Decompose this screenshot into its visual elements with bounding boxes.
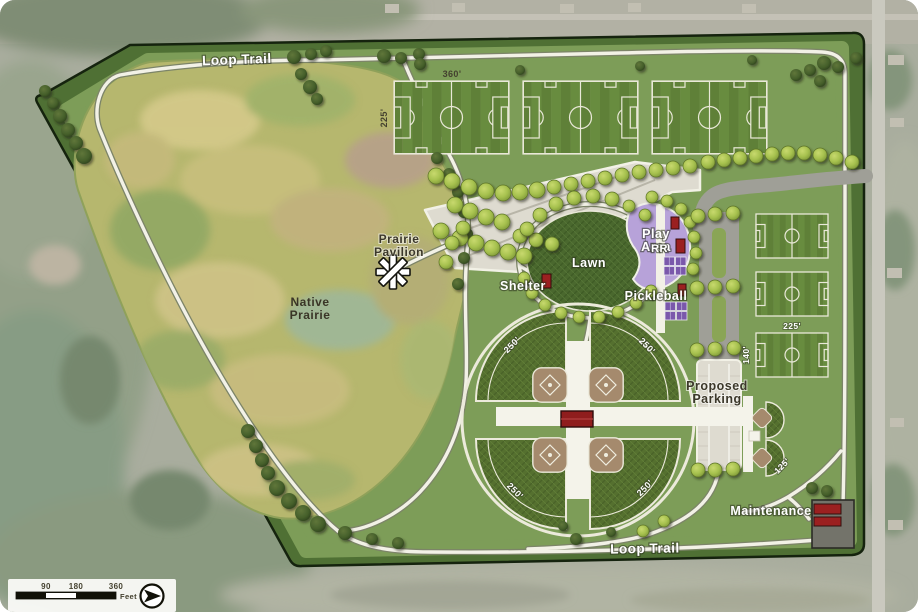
tree-icon [727, 341, 741, 355]
evergreen-tree-icon [295, 68, 307, 80]
tree-icon [708, 342, 722, 356]
tree-icon [433, 223, 449, 239]
tree-icon [813, 148, 827, 162]
evergreen-tree-icon [452, 278, 464, 290]
tree-icon [516, 248, 532, 264]
tree-icon [726, 206, 740, 220]
tree-icon [726, 462, 740, 476]
tree-icon [708, 280, 722, 294]
tree-icon [468, 235, 484, 251]
evergreen-tree-icon [606, 527, 616, 537]
tree-icon [708, 463, 722, 477]
label-proposed-parking: Proposed [686, 379, 748, 393]
evergreen-tree-icon [570, 533, 582, 545]
evergreen-tree-icon [320, 45, 332, 57]
evergreen-tree-icon [558, 521, 568, 531]
tree-icon [632, 165, 646, 179]
tree-icon [690, 343, 704, 357]
tree-icon [691, 209, 705, 223]
tree-icon [845, 155, 859, 169]
tree-icon [666, 161, 680, 175]
tree-icon [708, 207, 722, 221]
dim-soccer-length: 360' [443, 69, 462, 79]
label-loop-trail-top: Loop Trail [202, 51, 272, 68]
evergreen-tree-icon [821, 485, 833, 497]
tree-icon [456, 221, 470, 235]
tree-icon [495, 185, 511, 201]
tree-icon [462, 203, 478, 219]
tree-icon [567, 191, 581, 205]
tree-icon [829, 151, 843, 165]
prairie-pavilion-asterisk-icon [376, 255, 410, 289]
dim-small-soccer-width: 140' [741, 346, 751, 364]
tree-icon [520, 222, 534, 236]
evergreen-tree-icon [287, 50, 301, 64]
tree-icon [461, 179, 477, 195]
tree-icon [688, 231, 700, 243]
scale-unit: Feet [120, 592, 137, 601]
tree-icon [512, 184, 528, 200]
evergreen-tree-icon [261, 466, 275, 480]
evergreen-tree-icon [832, 61, 844, 73]
evergreen-tree-icon [53, 109, 67, 123]
tree-icon [478, 209, 494, 225]
label-native-prairie-2: Prairie [290, 308, 331, 322]
tree-icon [484, 240, 500, 256]
evergreen-tree-icon [747, 55, 757, 65]
evergreen-tree-icon [790, 69, 802, 81]
tree-icon [661, 195, 673, 207]
tree-icon [494, 214, 510, 230]
tree-icon [598, 171, 612, 185]
evergreen-tree-icon [338, 526, 352, 540]
tree-icon [444, 173, 460, 189]
tree-icon [586, 189, 600, 203]
tree-icon [428, 168, 444, 184]
tree-icon [593, 311, 605, 323]
evergreen-tree-icon [249, 439, 263, 453]
label-rr: RR [651, 243, 668, 255]
label-prairie-pavilion-2: Pavilion [374, 245, 424, 259]
tree-icon [717, 153, 731, 167]
north-arrow-icon [141, 585, 164, 608]
evergreen-tree-icon [806, 482, 818, 494]
tree-icon [445, 236, 459, 250]
evergreen-tree-icon [850, 52, 862, 64]
site-plan-svg: Loop Trail Loop Trail Native Prairie Pra… [0, 0, 918, 612]
tree-icon [690, 281, 704, 295]
evergreen-tree-icon [366, 533, 378, 545]
scale-tick-180: 180 [69, 582, 84, 591]
evergreen-tree-icon [414, 58, 426, 70]
tree-icon [726, 279, 740, 293]
label-native-prairie: Native [290, 295, 329, 309]
tree-icon [533, 208, 547, 222]
evergreen-tree-icon [814, 75, 826, 87]
tree-icon [797, 146, 811, 160]
evergreen-tree-icon [395, 52, 407, 64]
evergreen-tree-icon [804, 64, 816, 76]
tree-icon [539, 299, 551, 311]
label-loop-trail-bottom: Loop Trail [610, 540, 680, 556]
tree-icon [500, 244, 516, 260]
tree-icon [639, 209, 651, 221]
evergreen-tree-icon [303, 80, 317, 94]
evergreen-tree-icon [241, 424, 255, 438]
tree-icon [749, 149, 763, 163]
tree-icon [765, 147, 779, 161]
dim-small-soccer-length: 225' [783, 321, 801, 331]
tree-icon [691, 463, 705, 477]
tree-icon [701, 155, 715, 169]
evergreen-tree-icon [392, 537, 404, 549]
tree-icon [564, 177, 578, 191]
tree-icon [555, 307, 567, 319]
label-play-area: Play [642, 227, 670, 241]
soccer-fields-small [756, 214, 828, 377]
tree-icon [658, 515, 670, 527]
tree-icon [605, 192, 619, 206]
evergreen-tree-icon [305, 48, 317, 60]
maintenance-building [812, 500, 854, 548]
scale-tick-90: 90 [41, 582, 51, 591]
evergreen-tree-icon [269, 480, 285, 496]
tree-icon [637, 525, 649, 537]
tree-icon [675, 203, 687, 215]
tree-icon [549, 197, 563, 211]
label-maintenance: Maintenance [730, 504, 811, 518]
evergreen-tree-icon [431, 152, 443, 164]
scale-tick-360: 360 [109, 582, 124, 591]
evergreen-tree-icon [47, 97, 59, 109]
evergreen-tree-icon [61, 123, 75, 137]
dim-soccer-width: 225' [379, 109, 389, 128]
evergreen-tree-icon [635, 61, 645, 71]
evergreen-tree-icon [377, 49, 391, 63]
tree-icon [447, 197, 463, 213]
tree-icon [690, 247, 702, 259]
tree-icon [573, 311, 585, 323]
label-prairie-pavilion: Prairie [379, 232, 420, 246]
tree-icon [612, 306, 624, 318]
label-pickleball: Pickleball [625, 289, 688, 303]
park-master-plan-map: Loop Trail Loop Trail Native Prairie Pra… [0, 0, 918, 612]
evergreen-tree-icon [281, 493, 297, 509]
tree-icon [478, 183, 494, 199]
tree-icon [646, 191, 658, 203]
evergreen-tree-icon [515, 65, 525, 75]
tree-icon [615, 168, 629, 182]
evergreen-tree-icon [310, 516, 326, 532]
tree-icon [687, 263, 699, 275]
evergreen-tree-icon [458, 252, 470, 264]
tree-icon [581, 174, 595, 188]
evergreen-tree-icon [69, 136, 83, 150]
evergreen-tree-icon [817, 56, 831, 70]
tree-icon [683, 159, 697, 173]
label-shelter: Shelter [500, 279, 546, 293]
tree-icon [547, 180, 561, 194]
evergreen-tree-icon [295, 505, 311, 521]
soccer-fields-large [394, 81, 767, 154]
tree-icon [733, 151, 747, 165]
label-proposed-parking-2: Parking [692, 392, 741, 406]
tree-icon [781, 146, 795, 160]
evergreen-tree-icon [76, 148, 92, 164]
label-lawn: Lawn [572, 256, 606, 270]
evergreen-tree-icon [39, 85, 51, 97]
tree-icon [623, 200, 635, 212]
tree-icon [545, 237, 559, 251]
evergreen-tree-icon [255, 453, 269, 467]
tree-icon [649, 163, 663, 177]
tree-icon [439, 255, 453, 269]
tree-icon [529, 182, 545, 198]
evergreen-tree-icon [311, 93, 323, 105]
